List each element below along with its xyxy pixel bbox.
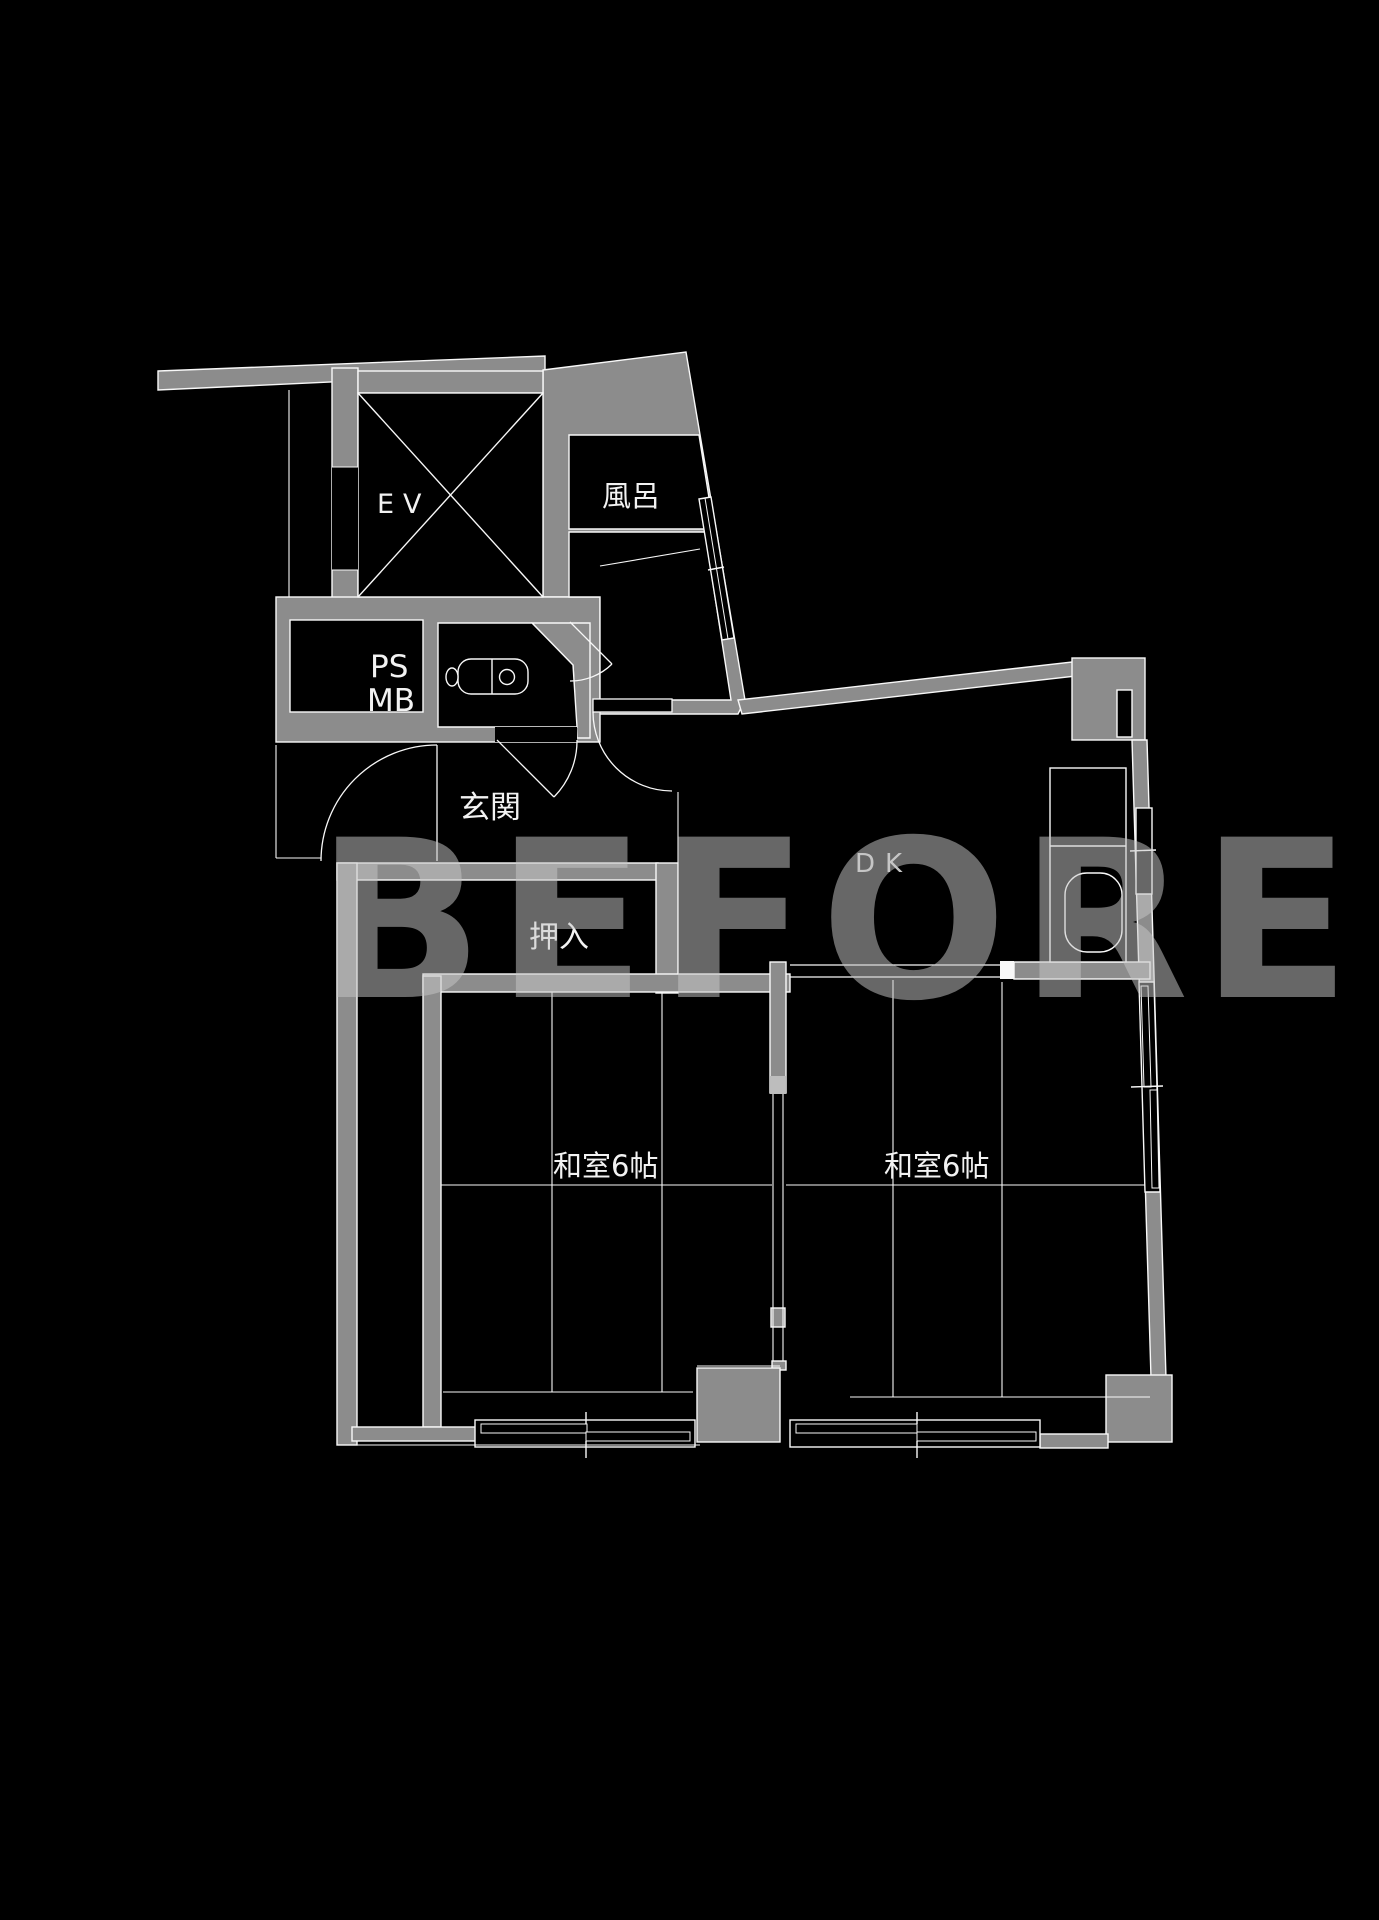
label-closet: 押入: [529, 920, 589, 955]
pier-notch: [1117, 690, 1132, 737]
wall-closet-top: [337, 863, 658, 880]
label-japanese-room-left: 和室6帖: [553, 1149, 658, 1183]
partition-light-block: [770, 1076, 786, 1094]
ev-wall-opening: [332, 467, 358, 570]
wall-rooms-top-left: [423, 974, 790, 992]
label-bath: 風呂: [602, 479, 660, 513]
wall-left-room: [423, 976, 441, 1427]
kitchen-sink: [1065, 873, 1122, 952]
washroom-door-leaf: [593, 699, 672, 712]
label-meter-box: MB: [367, 683, 415, 719]
toilet-door-opening: [495, 727, 577, 742]
toilet-door-arc: [554, 740, 577, 797]
label-entrance: 玄関: [459, 790, 521, 826]
wall-ev-top: [358, 371, 543, 393]
label-japanese-room-right: 和室6帖: [884, 1149, 989, 1183]
toilet-flush-icon: [500, 670, 515, 685]
floor-plan-canvas: EV 風呂 PS MB 玄関 押入 DK 和室6帖 和室6帖 BEFORE: [0, 0, 1379, 1920]
wall-bottom-right: [1040, 1434, 1108, 1448]
toilet-fixture: [458, 659, 528, 694]
floor-plan-drawing: EV 風呂 PS MB 玄関 押入 DK 和室6帖 和室6帖: [0, 0, 1379, 1920]
wall-dk-pier: [1072, 658, 1145, 740]
label-dining-kitchen: DK: [855, 849, 912, 879]
wall-corner-block: [1106, 1375, 1172, 1442]
label-pipe-space: PS: [370, 649, 408, 685]
wall-rooms-top-right: [1014, 962, 1150, 979]
wall-dk-slant: [738, 662, 1076, 714]
label-elevator: EV: [377, 489, 431, 520]
balcony-edge-bar: [352, 1427, 477, 1441]
front-door-arc: [321, 745, 437, 861]
partition-post-top: [770, 962, 786, 1093]
pillar-bottom-center: [697, 1368, 780, 1442]
wall-left-outer: [337, 863, 357, 1445]
toilet-door-leaf: [497, 740, 554, 797]
fusuma-jamb-cap: [1000, 961, 1014, 979]
washroom-door-arc: [593, 712, 672, 791]
